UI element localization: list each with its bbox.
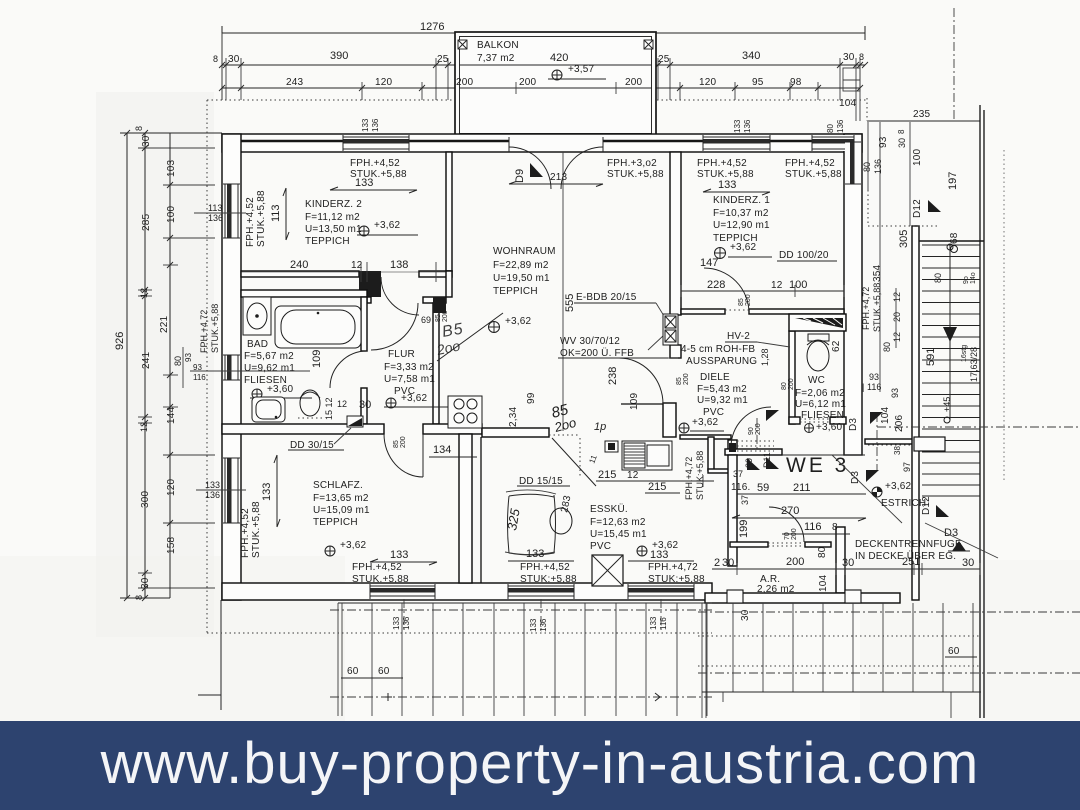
svg-text:U=12,90 m1: U=12,90 m1: [713, 220, 770, 231]
svg-text:200: 200: [456, 77, 474, 88]
svg-text:12: 12: [892, 292, 902, 302]
svg-text:12: 12: [771, 280, 783, 291]
svg-text:U=7,58 m1: U=7,58 m1: [384, 374, 435, 385]
svg-text:TEPPICH: TEPPICH: [305, 236, 350, 247]
svg-text:100: 100: [166, 205, 177, 223]
svg-text:2: 2: [714, 557, 720, 569]
svg-text:STUK.+5,88: STUK.+5,88: [872, 283, 882, 332]
svg-text:200: 200: [755, 423, 762, 435]
svg-text:30: 30: [962, 557, 974, 569]
svg-text:DD 15/15: DD 15/15: [519, 476, 563, 487]
svg-text:F=10,37 m2: F=10,37 m2: [713, 208, 769, 219]
svg-text:241: 241: [141, 351, 152, 369]
svg-text:215: 215: [648, 481, 666, 493]
svg-text:8: 8: [213, 54, 218, 64]
svg-text:D12: D12: [912, 199, 923, 218]
svg-text:DD 100/20: DD 100/20: [779, 250, 829, 261]
svg-text:1276: 1276: [420, 21, 444, 33]
svg-text:30: 30: [843, 52, 855, 63]
svg-text:D3: D3: [848, 418, 859, 431]
svg-text:+3,62: +3,62: [401, 393, 428, 404]
svg-text:STUK.+5,88: STUK.+5,88: [607, 169, 664, 180]
svg-text:15 12: 15 12: [324, 397, 334, 420]
svg-text:FPH.+4,52: FPH.+4,52: [240, 508, 251, 558]
svg-text:BAD: BAD: [247, 339, 268, 350]
svg-text:99: 99: [526, 392, 537, 404]
svg-text:2,26 m2: 2,26 m2: [757, 584, 795, 595]
svg-text:116.: 116.: [731, 482, 751, 493]
svg-text:69: 69: [421, 315, 431, 325]
svg-text:420: 420: [550, 52, 568, 64]
svg-text:116: 116: [804, 521, 822, 533]
svg-text:113: 113: [208, 203, 222, 213]
svg-text:+3,62: +3,62: [730, 242, 757, 253]
svg-text:109: 109: [311, 350, 323, 368]
svg-text:FPH.+4,52: FPH.+4,52: [350, 158, 400, 169]
svg-text:136: 136: [208, 213, 223, 223]
svg-text:FPH.+4,52: FPH.+4,52: [697, 158, 747, 169]
svg-text:133: 133: [392, 616, 401, 630]
svg-text:STUK.+5,88: STUK.+5,88: [210, 304, 220, 353]
svg-text:134: 134: [433, 444, 451, 456]
svg-text:12: 12: [627, 470, 639, 481]
svg-text:SCHLAFZ.: SCHLAFZ.: [313, 480, 363, 491]
svg-text:12: 12: [892, 332, 902, 342]
svg-text:+3,62: +3,62: [692, 417, 719, 428]
svg-text:133: 133: [718, 179, 736, 191]
svg-text:FPH.+4,72: FPH.+4,72: [684, 457, 694, 500]
svg-text:F=22,89 m2: F=22,89 m2: [493, 260, 549, 271]
svg-text:926: 926: [114, 332, 126, 350]
svg-text:30: 30: [897, 138, 907, 148]
svg-text:85: 85: [676, 377, 683, 385]
svg-text:199: 199: [738, 520, 750, 538]
svg-text:200: 200: [745, 294, 752, 306]
svg-text:AUSSPARUNG: AUSSPARUNG: [686, 356, 757, 367]
svg-text:20: 20: [892, 312, 902, 322]
svg-text:133: 133: [526, 548, 544, 560]
svg-text:30: 30: [141, 135, 152, 147]
svg-text:FPH.+4,52: FPH.+4,52: [245, 197, 256, 247]
svg-text:8: 8: [832, 522, 838, 533]
svg-text:U=13,50 m1: U=13,50 m1: [305, 224, 362, 235]
svg-text:390: 390: [330, 50, 348, 62]
svg-text:FPH.+4,52: FPH.+4,52: [785, 158, 835, 169]
svg-text:116: 116: [193, 373, 206, 382]
svg-text:136: 136: [402, 616, 411, 630]
svg-text:109: 109: [629, 392, 640, 410]
svg-text:62: 62: [831, 340, 842, 352]
svg-text:F=12,63 m2: F=12,63 m2: [590, 517, 646, 528]
svg-text:1,28: 1,28: [760, 348, 770, 366]
svg-text:U=15,45 m1: U=15,45 m1: [590, 529, 647, 540]
svg-text:+45: +45: [942, 397, 952, 412]
svg-text:4-5 cm ROH-FB: 4-5 cm ROH-FB: [681, 344, 755, 355]
svg-text:ESSKÜ.: ESSKÜ.: [590, 503, 628, 515]
svg-text:133: 133: [733, 119, 742, 133]
svg-text:200: 200: [683, 373, 690, 385]
svg-text:PVC: PVC: [590, 541, 611, 552]
svg-text:197: 197: [947, 172, 959, 190]
svg-text:80: 80: [882, 342, 892, 352]
svg-text:OK=200 Ü. FFB: OK=200 Ü. FFB: [560, 347, 634, 359]
svg-text:37: 37: [733, 469, 743, 479]
svg-text:+3,60: +3,60: [267, 384, 294, 395]
svg-text:200: 200: [788, 378, 795, 390]
svg-text:KINDERZ. 2: KINDERZ. 2: [305, 199, 362, 210]
svg-text:DD 30/15: DD 30/15: [290, 440, 334, 451]
svg-text:120: 120: [375, 77, 393, 88]
svg-text:WOHNRAUM: WOHNRAUM: [493, 246, 556, 257]
svg-text:U=6,12 m1: U=6,12 m1: [795, 399, 846, 410]
svg-text:133: 133: [529, 618, 538, 632]
svg-text:206: 206: [894, 414, 905, 432]
svg-text:133: 133: [649, 616, 658, 630]
svg-text:60: 60: [948, 646, 960, 657]
svg-text:221: 221: [159, 315, 170, 333]
svg-text:100: 100: [789, 279, 807, 291]
svg-text:200: 200: [442, 310, 449, 322]
svg-text:9o: 9o: [963, 276, 970, 284]
svg-text:235: 235: [913, 109, 931, 120]
svg-text:138: 138: [390, 259, 408, 271]
svg-text:200: 200: [519, 77, 537, 88]
svg-text:25: 25: [437, 54, 449, 65]
svg-text:80: 80: [817, 546, 828, 558]
svg-text:FPH.+4,72: FPH.+4,72: [648, 562, 698, 573]
svg-text:8: 8: [134, 595, 144, 600]
svg-text:F=11,12 m2: F=11,12 m2: [305, 212, 360, 223]
svg-text:FPH.+4,72: FPH.+4,72: [861, 287, 871, 330]
svg-text:120: 120: [699, 77, 717, 88]
svg-text:136: 136: [743, 119, 752, 133]
svg-text:F=3,33 m2: F=3,33 m2: [384, 362, 434, 373]
svg-text:STUK.+5,88: STUK.+5,88: [256, 190, 267, 247]
svg-text:136: 136: [539, 618, 548, 632]
svg-text:F=5,67 m2: F=5,67 m2: [244, 351, 294, 362]
svg-text:93: 93: [869, 372, 879, 382]
svg-text:U=19,50 m1: U=19,50 m1: [493, 273, 550, 284]
svg-text:93: 93: [890, 388, 900, 398]
svg-text:30: 30: [228, 54, 240, 65]
svg-text:D3: D3: [850, 471, 861, 484]
svg-text:www.buy-property-in-austria.co: www.buy-property-in-austria.com: [100, 731, 980, 796]
svg-text:ESTRICH: ESTRICH: [881, 498, 926, 509]
svg-text:68: 68: [949, 232, 960, 244]
svg-text:136: 136: [836, 119, 845, 133]
svg-text:+3,60: +3,60: [816, 422, 843, 433]
svg-text:30: 30: [722, 557, 734, 569]
svg-text:340: 340: [742, 50, 760, 62]
svg-text:IN DECKE ÜBER EG.: IN DECKE ÜBER EG.: [855, 550, 956, 562]
svg-text:HV-2: HV-2: [727, 331, 750, 342]
svg-text:285: 285: [141, 213, 152, 231]
svg-text:KINDERZ. 1: KINDERZ. 1: [713, 195, 770, 206]
svg-text:80: 80: [826, 124, 835, 133]
svg-text:FLIESEN: FLIESEN: [801, 410, 844, 421]
svg-text:STUK.+5,88: STUK.+5,88: [785, 169, 842, 180]
svg-text:+3,62: +3,62: [340, 540, 367, 551]
svg-text:133: 133: [261, 483, 273, 501]
svg-text:133: 133: [390, 549, 408, 561]
svg-text:136: 136: [873, 159, 883, 174]
svg-text:7,37 m2: 7,37 m2: [477, 53, 515, 64]
svg-text:STUK:+5,88: STUK:+5,88: [520, 574, 577, 585]
svg-text:133: 133: [650, 549, 668, 561]
svg-text:STUK.+5,88: STUK.+5,88: [352, 574, 409, 585]
svg-text:8: 8: [134, 126, 144, 131]
svg-text:F=2,06 m2: F=2,06 m2: [795, 388, 845, 399]
svg-text:|: |: [862, 382, 864, 392]
svg-text:93: 93: [184, 353, 193, 362]
svg-text:DIELE: DIELE: [700, 372, 730, 383]
svg-text:211: 211: [793, 482, 811, 494]
svg-text:F=13,65 m2: F=13,65 m2: [313, 493, 369, 504]
svg-text:104: 104: [880, 406, 891, 424]
svg-text:85: 85: [738, 298, 745, 306]
svg-text:TEPPICH: TEPPICH: [493, 286, 538, 297]
svg-text:2,34: 2,34: [508, 406, 519, 427]
svg-text:38: 38: [893, 446, 902, 455]
svg-text:120: 120: [166, 478, 177, 496]
svg-text:59: 59: [757, 482, 769, 494]
svg-text:97: 97: [902, 462, 912, 472]
svg-text:D12: D12: [921, 496, 932, 515]
svg-text:305: 305: [898, 230, 910, 248]
svg-text:F=5,43 m2: F=5,43 m2: [697, 384, 747, 395]
svg-text:12: 12: [337, 399, 347, 409]
svg-text:104: 104: [818, 574, 829, 592]
svg-text:80: 80: [933, 273, 943, 283]
svg-text:STUK:+5,88: STUK:+5,88: [695, 451, 705, 500]
svg-text:30: 30: [359, 399, 371, 411]
svg-text:80: 80: [862, 162, 872, 172]
svg-text:136: 136: [371, 118, 380, 132]
svg-text:WV 30/70/12: WV 30/70/12: [560, 336, 620, 347]
svg-text:8: 8: [859, 52, 864, 62]
svg-text:60: 60: [378, 666, 390, 677]
svg-text:FPH.+4,52: FPH.+4,52: [520, 562, 570, 573]
svg-text:80: 80: [781, 382, 788, 390]
svg-text:116: 116: [867, 382, 881, 392]
svg-text:WC: WC: [808, 375, 825, 386]
svg-text:200: 200: [400, 436, 407, 448]
svg-text:200: 200: [625, 77, 643, 88]
svg-text:DECKENTRENNFUGE: DECKENTRENNFUGE: [855, 539, 962, 550]
svg-text:243: 243: [286, 77, 304, 88]
svg-text:133: 133: [361, 118, 370, 132]
svg-text:300: 300: [140, 490, 151, 508]
svg-text:1p: 1p: [594, 421, 606, 433]
svg-text:240: 240: [290, 259, 308, 271]
svg-text:STUK:+5,88: STUK:+5,88: [648, 574, 705, 585]
svg-text:BALKON: BALKON: [477, 40, 519, 51]
svg-text:228: 228: [707, 279, 725, 291]
svg-text:+3,62: +3,62: [505, 316, 532, 327]
svg-text:30: 30: [740, 609, 751, 621]
svg-text:D9: D9: [514, 169, 526, 183]
svg-text:215: 215: [598, 469, 616, 481]
svg-text:U=9,62 m1: U=9,62 m1: [244, 363, 295, 374]
svg-text:93: 93: [878, 136, 889, 148]
svg-text:+3,57: +3,57: [568, 64, 595, 75]
svg-text:270: 270: [781, 505, 799, 517]
svg-text:100: 100: [912, 148, 923, 166]
svg-text:238: 238: [607, 367, 619, 385]
svg-text:WE 3: WE 3: [786, 454, 849, 477]
svg-text:591: 591: [925, 348, 937, 366]
svg-text:113: 113: [270, 204, 282, 222]
svg-text:30: 30: [842, 557, 854, 569]
svg-text:STUK.+5,88: STUK.+5,88: [251, 501, 262, 558]
svg-text:90: 90: [748, 427, 755, 435]
svg-text:FPH.+4,52: FPH.+4,52: [352, 562, 402, 573]
svg-text:U=15,09 m1: U=15,09 m1: [313, 505, 370, 516]
svg-text:213: 213: [550, 172, 568, 183]
svg-text:14o: 14o: [970, 272, 977, 284]
svg-text:+3,62: +3,62: [374, 220, 401, 231]
svg-text:133: 133: [355, 177, 373, 189]
svg-text:200: 200: [786, 556, 804, 568]
svg-text:17,63/28: 17,63/28: [969, 347, 979, 382]
svg-text:+3,62: +3,62: [885, 481, 912, 492]
svg-text:103: 103: [166, 159, 177, 177]
svg-text:158: 158: [166, 536, 177, 554]
svg-text:354: 354: [872, 264, 883, 282]
svg-text:8: 8: [897, 129, 906, 134]
svg-text:TEPPICH: TEPPICH: [313, 517, 358, 528]
svg-text:E-BDB 20/15: E-BDB 20/15: [576, 292, 637, 303]
svg-text:70: 70: [784, 532, 791, 540]
svg-text:147: 147: [700, 257, 718, 269]
svg-text:85: 85: [393, 440, 400, 448]
svg-text:U=9,32 m1: U=9,32 m1: [697, 395, 748, 406]
svg-text:95: 95: [752, 77, 764, 88]
svg-text:16stg: 16stg: [961, 345, 968, 362]
svg-text:116: 116: [659, 617, 668, 630]
svg-text:FPH.+3,o2: FPH.+3,o2: [607, 158, 657, 169]
svg-text:29: 29: [744, 458, 754, 468]
svg-text:60: 60: [347, 666, 359, 677]
svg-text:37: 37: [740, 495, 750, 505]
svg-text:80: 80: [173, 356, 183, 366]
svg-text:85: 85: [435, 314, 442, 322]
svg-text:FLUR: FLUR: [388, 349, 415, 360]
